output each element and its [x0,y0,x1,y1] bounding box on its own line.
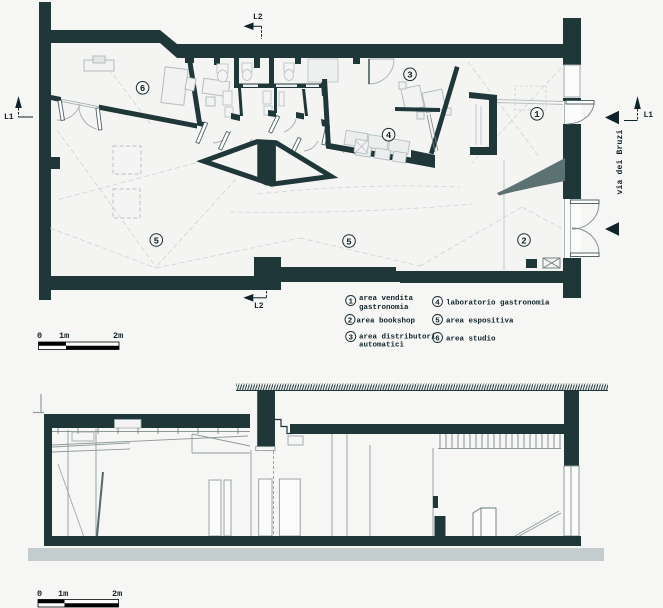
svg-text:1: 1 [534,110,540,120]
svg-text:6: 6 [435,336,440,344]
svg-text:L1: L1 [4,113,14,122]
svg-text:L2: L2 [254,302,264,311]
svg-text:area distributori: area distributori [359,334,436,342]
svg-text:laboratorio gastronomia: laboratorio gastronomia [446,300,550,308]
svg-text:2: 2 [348,318,353,326]
svg-text:1: 1 [348,299,353,307]
svg-text:1m: 1m [58,589,68,599]
svg-text:area espositiva: area espositiva [446,318,514,326]
svg-text:automatici: automatici [359,342,405,350]
svg-text:L1: L1 [644,111,654,120]
svg-text:via dei Bruzi: via dei Bruzi [616,129,625,194]
svg-text:6: 6 [140,84,145,94]
svg-text:3: 3 [407,71,412,81]
svg-text:area vendita: area vendita [359,295,414,303]
svg-text:area bookshop: area bookshop [357,318,416,326]
svg-text:1m: 1m [59,331,69,341]
svg-text:0: 0 [37,589,42,599]
svg-text:3: 3 [348,335,353,343]
svg-text:5: 5 [346,237,351,247]
svg-text:area studio: area studio [446,336,496,344]
svg-text:4: 4 [386,131,392,141]
svg-text:2m: 2m [113,331,123,341]
svg-text:L2: L2 [253,13,263,22]
svg-text:5: 5 [435,318,440,326]
svg-text:5: 5 [154,236,159,246]
svg-text:2: 2 [521,236,526,246]
svg-text:0: 0 [37,331,42,341]
svg-text:4: 4 [435,300,440,308]
svg-text:2m: 2m [112,589,122,599]
svg-text:gastronomia: gastronomia [359,304,409,312]
